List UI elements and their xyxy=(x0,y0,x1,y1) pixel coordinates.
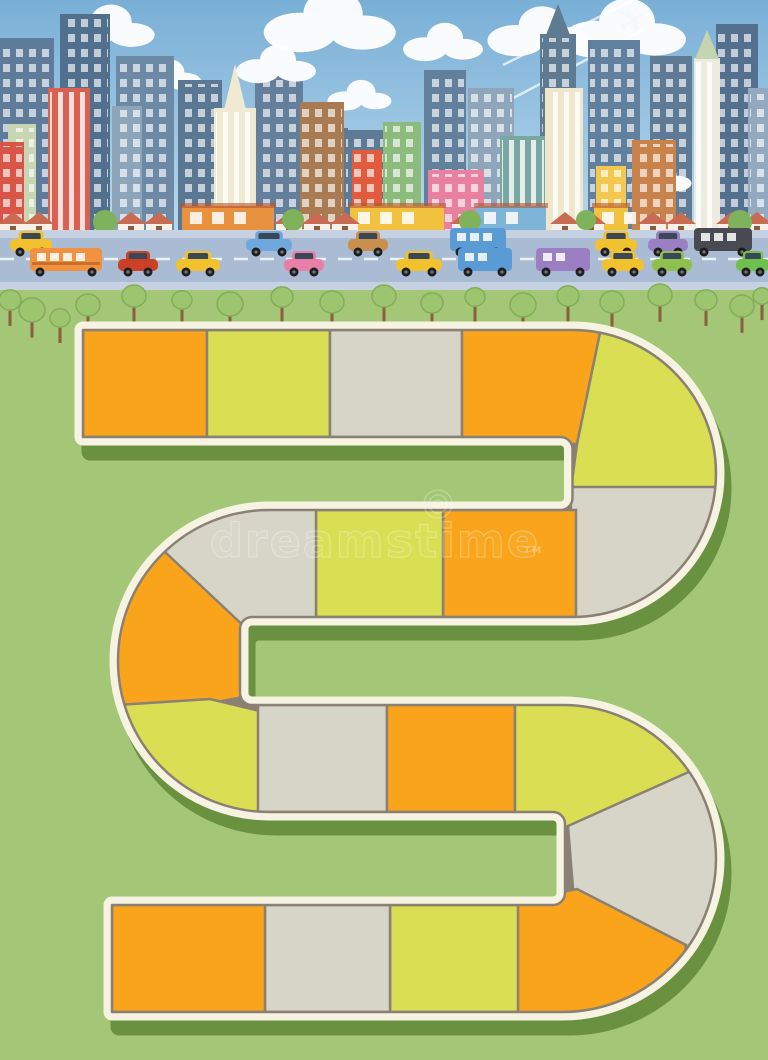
path-tile-1 xyxy=(83,330,207,437)
path-tile-18 xyxy=(265,905,390,1012)
watermark-tm: TM xyxy=(524,546,543,556)
building xyxy=(300,102,344,236)
building xyxy=(694,30,720,236)
path-tile-12 xyxy=(258,705,387,812)
shop xyxy=(348,203,446,234)
path-tile-17 xyxy=(390,905,518,1012)
background-tree xyxy=(282,209,304,231)
shop xyxy=(180,203,276,234)
path-tile-13 xyxy=(387,705,515,812)
path-tile-19 xyxy=(112,905,265,1012)
background-tree xyxy=(576,210,596,230)
illustration-canvas: ✈ dreamstime TM xyxy=(0,0,768,1060)
watermark-text: dreamstime xyxy=(210,514,540,568)
path-tile-2 xyxy=(207,330,330,437)
path-tile-3 xyxy=(330,330,462,437)
building xyxy=(48,88,90,236)
scene-svg: ✈ dreamstime TM xyxy=(0,0,768,1060)
